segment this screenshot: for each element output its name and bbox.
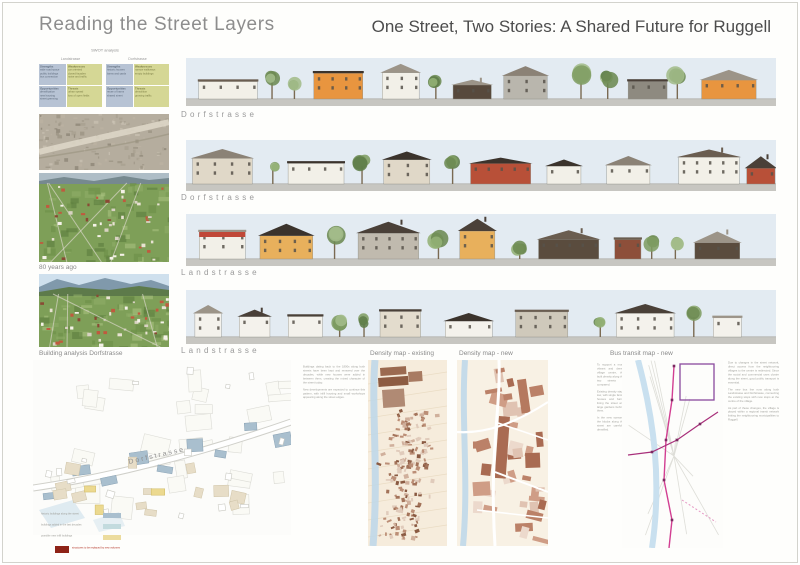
swot-analysis: SWOT analysisLandstrasseStrengthswide ro… (39, 48, 171, 112)
legend-row: historic buildings along the street (41, 512, 131, 520)
project-title: One Street, Two Stories: A Shared Future… (372, 17, 771, 37)
text-paragraph: As part of these changes, the village is… (728, 406, 779, 422)
analysis-text-column-3: Due to changes in the street network, di… (728, 361, 779, 501)
elevation-label-4: Landstrasse (181, 346, 260, 355)
text-paragraph: To support a more vibrant and dense vill… (597, 363, 624, 387)
poster-board: Reading the Street Layers One Street, Tw… (2, 2, 798, 563)
elevation-label-3: Landstrasse (181, 268, 260, 277)
swot-box-strengths: Strengthshistoric housesbarns and yards (106, 64, 133, 85)
swot-box-threats: Threatsurban sprawlloss of open fields (67, 86, 102, 107)
elevation-drawing-dorfstrasse-1 (186, 58, 776, 106)
legend-swatch (103, 535, 121, 540)
elevation-drawing-landstrasse-1 (186, 214, 776, 266)
text-paragraph: New developments are expected to continu… (303, 388, 365, 400)
bus-transit-map (622, 360, 723, 548)
swot-box-threats: Threatsdemolitiongrowing traffic (134, 86, 169, 107)
text-paragraph: The new bus line runs along both Landstr… (728, 388, 779, 404)
swot-column-name: Landstrasse (56, 57, 84, 61)
legend-swatch (103, 524, 121, 529)
density-map-new (457, 360, 548, 546)
aerial-photo-new (39, 274, 169, 347)
building-analysis-label: Building analysis Dorfstrasse (39, 349, 122, 357)
elevation-label-1: Dorfstrasse (181, 110, 257, 119)
legend-note-row: structures to be replaced by new volumes (55, 546, 135, 555)
swot-box-strengths: Strengthswide road spacepublic buildings… (39, 64, 66, 85)
text-paragraph: In the new scenario the blocks along the… (597, 416, 624, 432)
elevation-drawing-dorfstrasse-2 (186, 140, 776, 191)
swot-box-weaknesses: Weaknessescar orientedclosed facadesnois… (67, 64, 102, 85)
swot-box-opportunities: Opportunitiesreuse of barnsshared street (106, 86, 133, 107)
analysis-text-column-1: Buildings dating back to the 1800s along… (303, 365, 365, 470)
density-new-label: Density map - new (459, 349, 513, 357)
photo-caption: 80 years ago (39, 263, 77, 271)
swot-box-opportunities: Opportunitiesdensificationnew housingstr… (39, 86, 66, 107)
map-legend: historic buildings along the streetbuild… (41, 512, 131, 545)
density-map-existing (368, 360, 447, 546)
density-existing-label: Density map - existing (370, 349, 434, 357)
legend-row: possible new infill buildings (41, 534, 131, 542)
text-paragraph: Existing density stays low, with single … (597, 390, 624, 414)
aerial-photo-old (39, 173, 169, 262)
elevation-label-2: Dorfstrasse (181, 193, 257, 202)
bus-transit-label: Bus transit map - new (610, 349, 673, 357)
legend-swatch (103, 513, 121, 518)
elevation-drawing-landstrasse-2 (186, 290, 776, 344)
swot-column-name: Dorfstrasse (123, 57, 151, 61)
swot-box-weaknesses: Weaknessesnarrow walkwaysempty buildings (134, 64, 169, 85)
building-analysis-map: Dorfstrasse (33, 360, 291, 535)
map-legend-note: structures to be replaced by new volumes (55, 546, 135, 555)
legend-note-swatch (55, 546, 69, 553)
text-paragraph: Due to changes in the street network, di… (728, 361, 779, 385)
page-title: Reading the Street Layers (39, 14, 275, 36)
text-paragraph: Buildings dating back to the 1800s along… (303, 365, 365, 385)
historic-aerial-photo (39, 114, 169, 170)
swot-title: SWOT analysis (75, 48, 134, 53)
analysis-text-column-2: To support a more vibrant and dense vill… (597, 363, 624, 475)
legend-row: buildings added in the last decades (41, 523, 131, 531)
